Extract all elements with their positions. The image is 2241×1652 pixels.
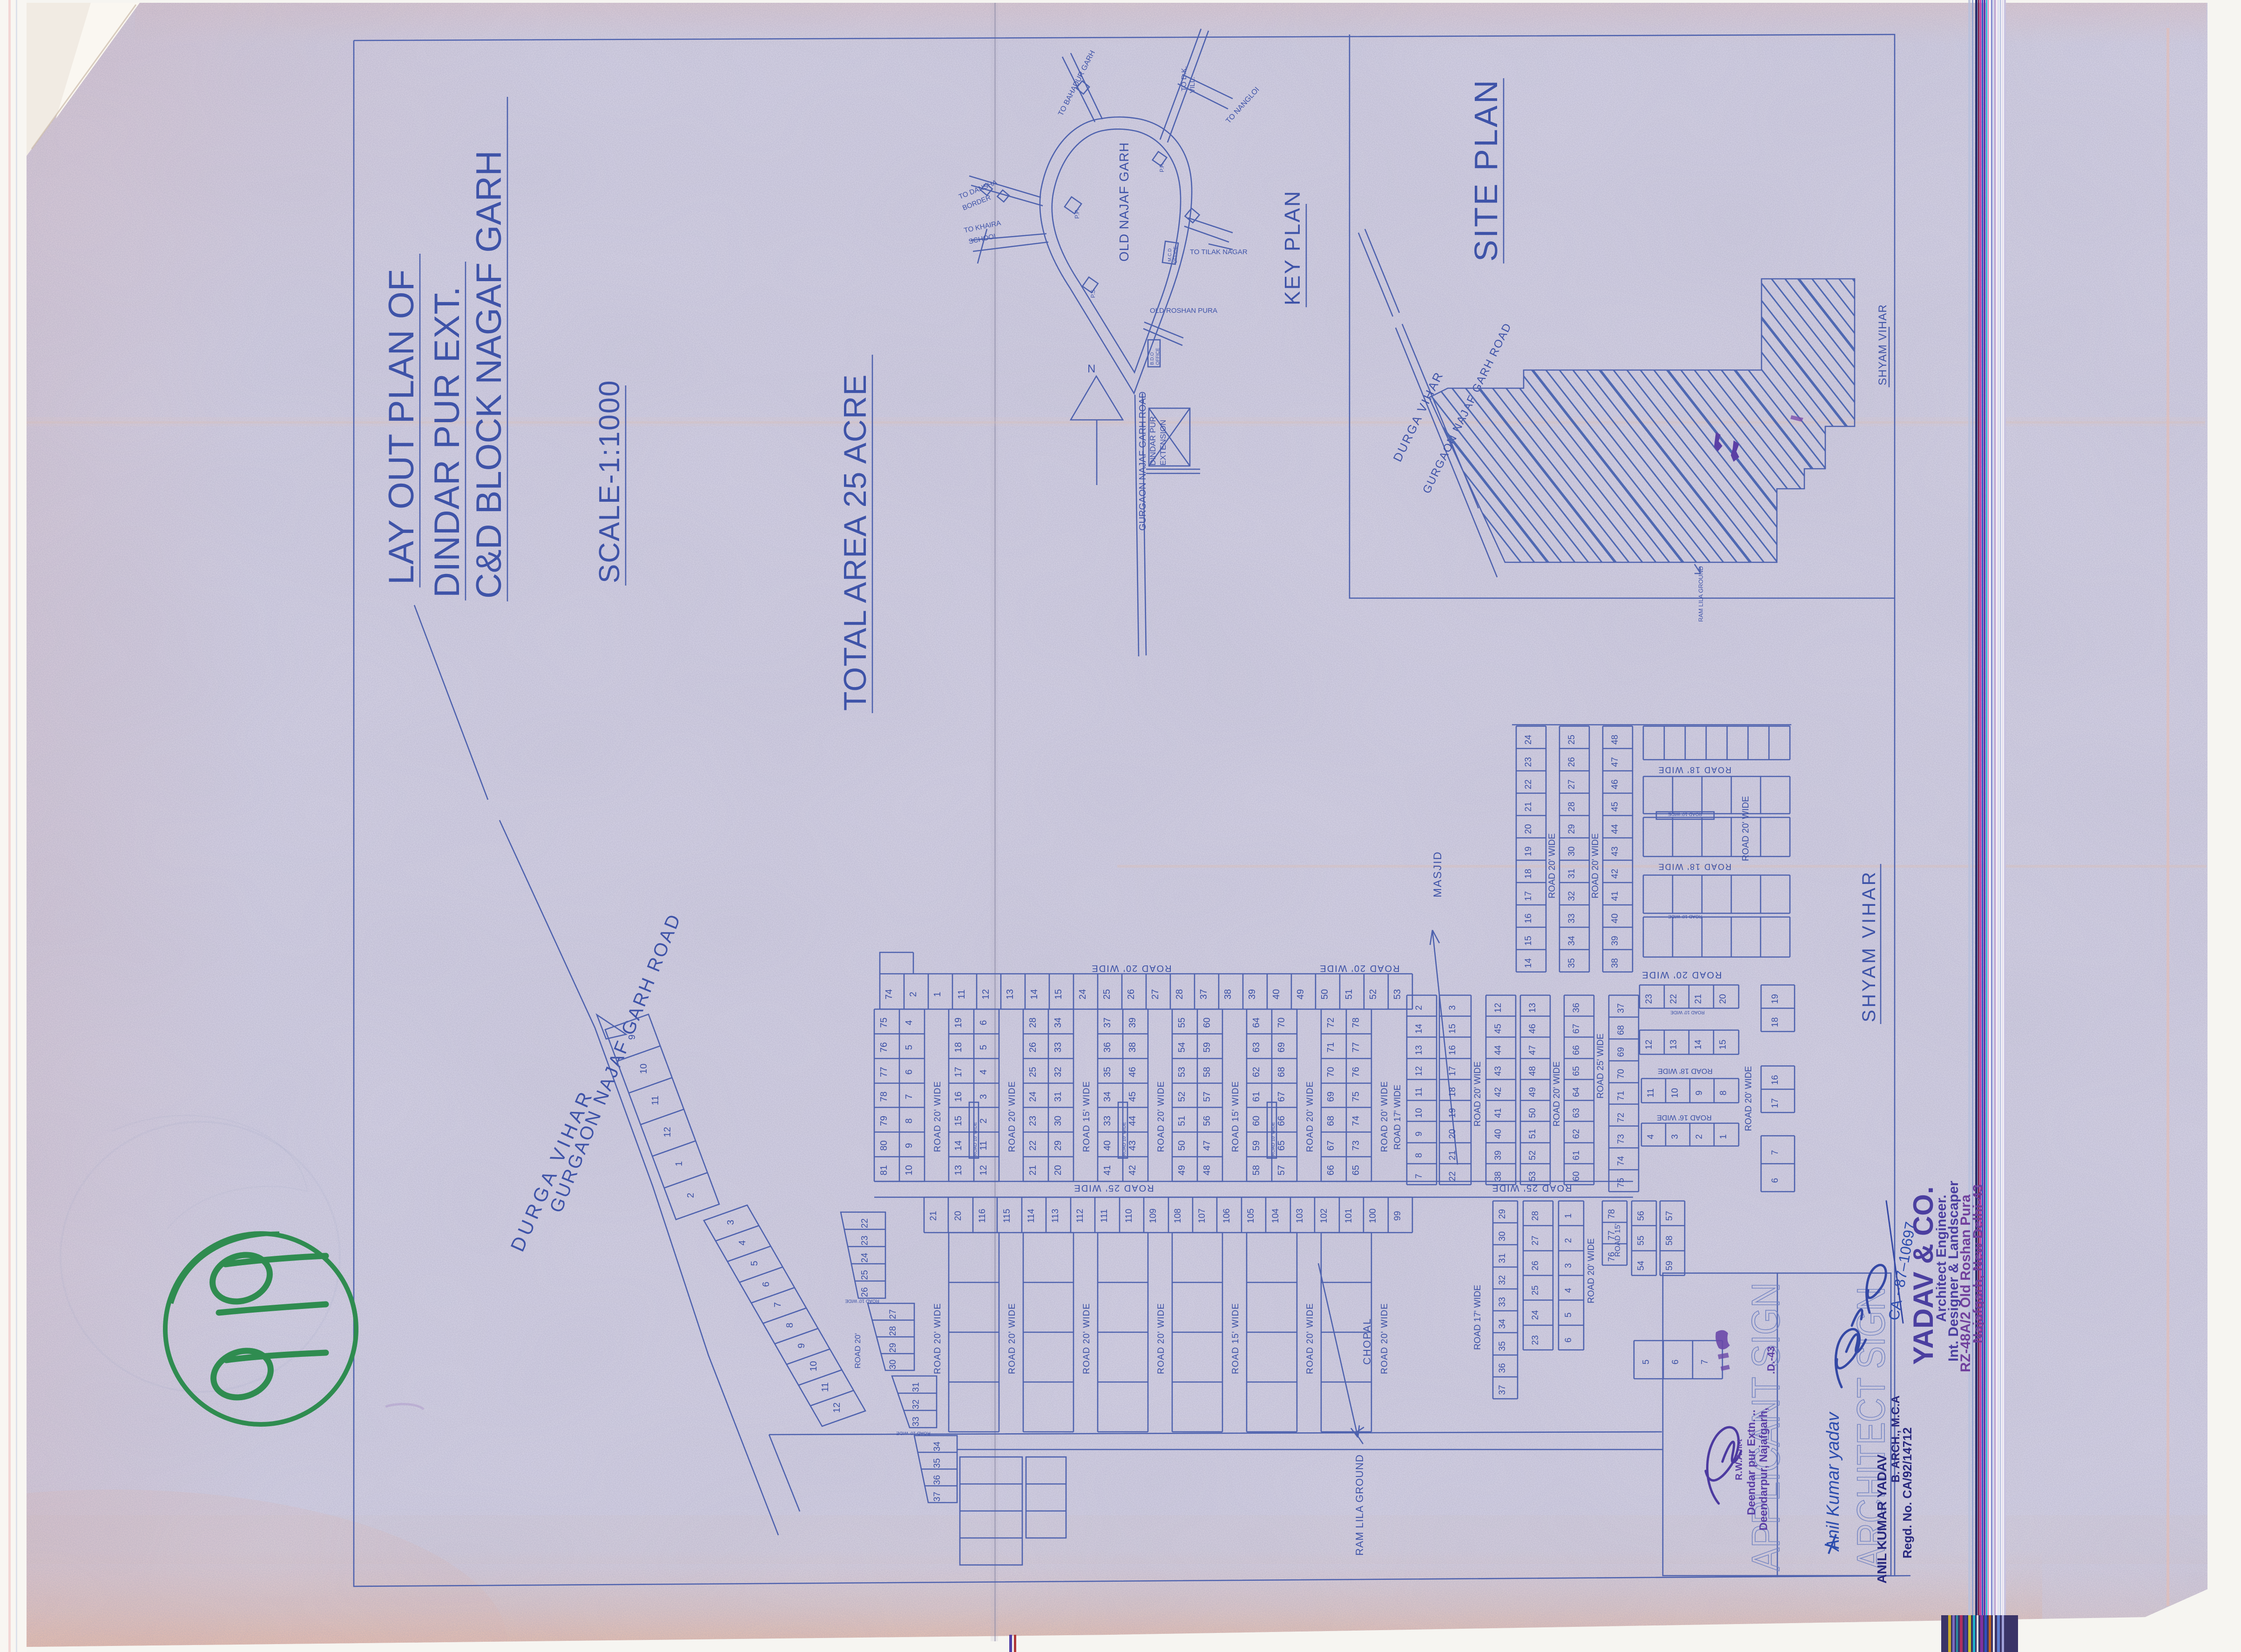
svg-text:44: 44 <box>1610 824 1620 834</box>
svg-text:63: 63 <box>1251 1042 1262 1052</box>
svg-text:8: 8 <box>1719 1091 1728 1096</box>
svg-text:36: 36 <box>932 1475 942 1485</box>
svg-text:15: 15 <box>953 1116 964 1126</box>
svg-text:50: 50 <box>1177 1140 1187 1151</box>
svg-text:39: 39 <box>1610 936 1620 945</box>
svg-text:24: 24 <box>1078 989 1088 999</box>
svg-text:42: 42 <box>1493 1087 1503 1097</box>
svg-text:63: 63 <box>1572 1108 1581 1118</box>
svg-text:18: 18 <box>953 1042 964 1052</box>
svg-text:71: 71 <box>1326 1042 1336 1052</box>
svg-text:20: 20 <box>1448 1129 1458 1139</box>
svg-text:11: 11 <box>820 1382 830 1392</box>
svg-text:24: 24 <box>1524 735 1533 745</box>
svg-text:OLD NAJAF GARH: OLD NAJAF GARH <box>1117 142 1131 262</box>
svg-text:ROAD 18' WIDE: ROAD 18' WIDE <box>1658 1067 1713 1075</box>
svg-text:15: 15 <box>1053 989 1064 999</box>
svg-text:106: 106 <box>1222 1208 1232 1223</box>
svg-text:109: 109 <box>1148 1208 1158 1223</box>
svg-text:17: 17 <box>953 1067 964 1077</box>
svg-text:66: 66 <box>1572 1045 1581 1055</box>
svg-text:4: 4 <box>737 1240 748 1245</box>
svg-text:21: 21 <box>1028 1165 1038 1175</box>
svg-text:29: 29 <box>1053 1140 1063 1151</box>
svg-text:14: 14 <box>1694 1039 1703 1050</box>
svg-text:1: 1 <box>1564 1214 1573 1219</box>
svg-text:28: 28 <box>1028 1018 1038 1028</box>
svg-text:ROAD 20' WIDE: ROAD 20' WIDE <box>1091 963 1171 973</box>
svg-text:23: 23 <box>1644 994 1654 1004</box>
svg-text:19: 19 <box>1524 846 1533 856</box>
svg-text:58: 58 <box>1202 1067 1212 1077</box>
svg-text:73: 73 <box>1616 1134 1626 1144</box>
svg-text:ROAD 10' WIDE: ROAD 10' WIDE <box>1668 811 1702 816</box>
svg-text:ROAD 20' WIDE: ROAD 20' WIDE <box>1591 833 1600 898</box>
svg-text:42: 42 <box>1610 869 1620 878</box>
svg-text:16: 16 <box>953 1092 964 1102</box>
svg-text:52: 52 <box>1528 1150 1538 1160</box>
svg-text:17: 17 <box>1524 891 1533 901</box>
svg-text:104: 104 <box>1271 1208 1281 1223</box>
svg-text:34: 34 <box>1053 1018 1063 1028</box>
svg-text:18: 18 <box>1448 1087 1458 1097</box>
svg-text:52: 52 <box>1177 1092 1187 1102</box>
svg-text:38: 38 <box>1493 1171 1503 1181</box>
svg-text:ROAD 25' WIDE: ROAD 25' WIDE <box>1596 1033 1606 1099</box>
svg-text:14: 14 <box>1524 958 1533 968</box>
svg-text:31: 31 <box>1053 1092 1063 1102</box>
svg-text:111: 111 <box>1100 1209 1109 1223</box>
svg-text:45: 45 <box>1610 802 1620 811</box>
svg-text:114: 114 <box>1026 1208 1036 1223</box>
svg-text:53: 53 <box>1177 1067 1187 1077</box>
svg-text:35: 35 <box>1498 1341 1507 1351</box>
svg-text:Deendarpur, Najafgarh,: Deendarpur, Najafgarh, <box>1757 1408 1770 1531</box>
svg-text:M.C.D: M.C.D <box>1168 249 1173 262</box>
svg-text:37: 37 <box>1616 1003 1626 1013</box>
svg-text:75: 75 <box>1351 1092 1361 1102</box>
svg-text:ROAD 20' WIDE: ROAD 20' WIDE <box>1156 1303 1166 1374</box>
svg-text:ROAD 15' WIDE: ROAD 15' WIDE <box>1231 1081 1241 1152</box>
svg-text:77: 77 <box>1351 1042 1361 1052</box>
svg-text:29: 29 <box>888 1343 898 1353</box>
svg-text:28: 28 <box>888 1326 898 1336</box>
svg-text:11: 11 <box>650 1096 661 1106</box>
svg-text:68: 68 <box>1616 1025 1626 1035</box>
svg-text:74: 74 <box>1351 1116 1361 1126</box>
svg-text:72: 72 <box>1616 1113 1626 1122</box>
svg-text:12: 12 <box>1644 1039 1654 1049</box>
svg-text:29: 29 <box>1567 824 1577 834</box>
svg-text:ROAD 16' WIDE: ROAD 16' WIDE <box>1657 1113 1712 1121</box>
svg-text:23: 23 <box>860 1235 870 1245</box>
svg-text:26: 26 <box>1567 757 1577 767</box>
svg-text:64: 64 <box>1572 1087 1581 1097</box>
svg-text:13: 13 <box>1528 1003 1538 1012</box>
svg-text:78: 78 <box>1351 1018 1361 1028</box>
svg-text:9: 9 <box>627 1034 637 1039</box>
svg-text:45: 45 <box>1493 1024 1503 1033</box>
svg-text:31: 31 <box>1567 869 1577 878</box>
svg-text:28: 28 <box>1531 1211 1540 1220</box>
svg-text:ROAD 15' WIDE: ROAD 15' WIDE <box>1082 1081 1092 1152</box>
svg-text:19: 19 <box>1448 1108 1458 1118</box>
svg-text:64: 64 <box>1251 1018 1262 1028</box>
svg-text:10: 10 <box>639 1064 649 1074</box>
svg-text:115: 115 <box>1002 1209 1012 1223</box>
svg-text:ROAD 20' WIDE: ROAD 20' WIDE <box>933 1303 943 1374</box>
svg-text:113: 113 <box>1051 1209 1060 1223</box>
svg-text:65: 65 <box>1572 1066 1581 1076</box>
svg-text:ROAD 10' WIDE: ROAD 10' WIDE <box>1668 914 1702 919</box>
svg-text:74: 74 <box>1616 1156 1626 1166</box>
svg-text:21: 21 <box>929 1211 938 1220</box>
svg-text:66: 66 <box>1326 1165 1336 1175</box>
svg-text:58: 58 <box>1665 1235 1674 1245</box>
svg-text:OFFICE: OFFICE <box>1173 246 1178 263</box>
svg-text:24: 24 <box>1028 1092 1038 1102</box>
svg-text:40: 40 <box>1271 989 1282 999</box>
svg-text:ROAD 20' WIDE: ROAD 20' WIDE <box>1741 796 1751 861</box>
svg-text:57: 57 <box>1202 1092 1212 1102</box>
svg-text:ROAD 20' WIDE: ROAD 20' WIDE <box>1641 970 1721 980</box>
svg-text:6: 6 <box>1564 1338 1573 1343</box>
svg-text:28: 28 <box>1567 802 1577 811</box>
svg-text:39: 39 <box>1127 1018 1138 1028</box>
svg-text:3: 3 <box>1448 1005 1458 1011</box>
svg-text:21: 21 <box>1694 994 1703 1004</box>
svg-text:45: 45 <box>1127 1092 1138 1102</box>
svg-text:25: 25 <box>1102 989 1112 999</box>
svg-text:13: 13 <box>953 1165 964 1175</box>
svg-text:ROAD 18' WIDE: ROAD 18' WIDE <box>1658 765 1731 775</box>
svg-text:4: 4 <box>1564 1288 1573 1293</box>
svg-text:36: 36 <box>1572 1003 1581 1012</box>
svg-text:Deendar pur Extn. ..: Deendar pur Extn. .. <box>1745 1409 1758 1515</box>
svg-text:75: 75 <box>879 1018 889 1028</box>
svg-text:5: 5 <box>749 1261 760 1266</box>
svg-text:48: 48 <box>1528 1066 1538 1076</box>
svg-text:20: 20 <box>953 1211 963 1220</box>
svg-text:70: 70 <box>1276 1018 1287 1028</box>
svg-text:12: 12 <box>832 1403 842 1413</box>
svg-text:29: 29 <box>1498 1209 1507 1219</box>
svg-text:81: 81 <box>879 1165 889 1175</box>
svg-text:40: 40 <box>1102 1140 1113 1151</box>
svg-text:30: 30 <box>1498 1231 1507 1241</box>
svg-text:46: 46 <box>1127 1067 1138 1077</box>
svg-text:69: 69 <box>1276 1042 1287 1052</box>
svg-text:53: 53 <box>1528 1171 1538 1181</box>
svg-text:3: 3 <box>979 1094 989 1099</box>
svg-text:65: 65 <box>1351 1165 1361 1175</box>
svg-text:43: 43 <box>1610 846 1620 856</box>
svg-text:17: 17 <box>1448 1066 1458 1076</box>
svg-text:22: 22 <box>1448 1171 1458 1181</box>
svg-text:68: 68 <box>1326 1116 1336 1126</box>
svg-text:107: 107 <box>1197 1208 1207 1223</box>
svg-text:67: 67 <box>1276 1092 1287 1102</box>
svg-text:8: 8 <box>904 1118 914 1123</box>
svg-text:48: 48 <box>1610 735 1620 744</box>
svg-text:ROAD 20': ROAD 20' <box>853 1333 862 1369</box>
svg-text:26: 26 <box>860 1287 870 1297</box>
svg-text:2: 2 <box>686 1193 696 1198</box>
svg-text:Najafgarh, New Delhi-43: Najafgarh, New Delhi-43 <box>1971 1184 1986 1343</box>
svg-text:11: 11 <box>979 1141 989 1151</box>
svg-text:23: 23 <box>1028 1116 1038 1126</box>
svg-text:54: 54 <box>1636 1261 1646 1271</box>
svg-text:ROAD 20' WIDE: ROAD 20' WIDE <box>1082 1303 1092 1374</box>
svg-text:KEY PLAN: KEY PLAN <box>1280 190 1304 305</box>
svg-text:46: 46 <box>1610 779 1620 789</box>
svg-text:67: 67 <box>1572 1024 1581 1033</box>
svg-text:14: 14 <box>953 1140 964 1151</box>
svg-text:P.P.: P.P. <box>1159 163 1165 172</box>
svg-text:31: 31 <box>1498 1253 1507 1263</box>
svg-text:57: 57 <box>1665 1211 1674 1220</box>
svg-text:2: 2 <box>979 1118 989 1123</box>
svg-text:22: 22 <box>1524 779 1533 789</box>
svg-text:33: 33 <box>1102 1116 1113 1126</box>
svg-text:25: 25 <box>1567 735 1577 744</box>
svg-text:ROAD 20' WIDE: ROAD 20' WIDE <box>1380 1081 1390 1152</box>
svg-text:50: 50 <box>1528 1108 1538 1118</box>
svg-text:56: 56 <box>1202 1116 1212 1126</box>
svg-text:ROAD 10' WIDE: ROAD 10' WIDE <box>1271 1122 1276 1156</box>
svg-text:49: 49 <box>1177 1165 1187 1175</box>
svg-text:OFFICE: OFFICE <box>1155 348 1161 365</box>
svg-text:27: 27 <box>1150 989 1161 999</box>
svg-text:14: 14 <box>1414 1024 1424 1034</box>
svg-text:30: 30 <box>1053 1116 1063 1126</box>
svg-text:34: 34 <box>932 1441 942 1451</box>
svg-text:72: 72 <box>1326 1018 1336 1028</box>
svg-text:SHYAM VIHAR: SHYAM VIHAR <box>1859 870 1879 1022</box>
svg-text:65: 65 <box>1276 1140 1287 1151</box>
svg-text:12: 12 <box>981 989 991 999</box>
svg-text:TO TILAK NAGAR: TO TILAK NAGAR <box>1190 248 1248 256</box>
svg-text:13: 13 <box>1669 1039 1679 1049</box>
svg-text:12: 12 <box>662 1127 673 1137</box>
svg-text:46: 46 <box>1528 1024 1538 1033</box>
svg-text:8: 8 <box>785 1322 795 1328</box>
svg-text:25: 25 <box>860 1270 870 1280</box>
svg-text:108: 108 <box>1173 1208 1183 1223</box>
svg-text:33: 33 <box>1498 1297 1507 1307</box>
svg-text:32: 32 <box>1567 891 1577 901</box>
svg-text:112: 112 <box>1075 1209 1085 1223</box>
svg-text:ROAD 20' WIDE: ROAD 20' WIDE <box>1319 963 1399 973</box>
svg-text:20: 20 <box>1524 824 1533 834</box>
svg-text:43: 43 <box>1127 1140 1138 1151</box>
svg-text:33: 33 <box>1567 913 1577 923</box>
svg-text:49: 49 <box>1528 1087 1538 1097</box>
svg-text:60: 60 <box>1251 1116 1262 1126</box>
svg-text:35: 35 <box>1567 958 1577 968</box>
svg-text:GURGAON NAJAF GARH ROAD: GURGAON NAJAF GARH ROAD <box>1138 391 1148 531</box>
svg-text:ROAD 20' WIDE: ROAD 20' WIDE <box>1547 833 1557 898</box>
svg-text:61: 61 <box>1572 1150 1581 1160</box>
svg-text:5: 5 <box>1641 1360 1651 1365</box>
svg-text:ANIL KUMAR YADAV: ANIL KUMAR YADAV <box>1875 1454 1889 1584</box>
svg-text:30: 30 <box>1567 846 1577 856</box>
svg-text:69: 69 <box>1616 1047 1626 1057</box>
svg-text:38: 38 <box>1127 1042 1138 1052</box>
svg-text:ROAD 20' WIDE: ROAD 20' WIDE <box>1305 1081 1315 1152</box>
svg-text:9: 9 <box>1694 1091 1704 1096</box>
svg-text:26: 26 <box>1028 1042 1038 1052</box>
svg-text:17: 17 <box>1770 1098 1780 1108</box>
svg-text:103: 103 <box>1295 1208 1305 1223</box>
svg-text:15: 15 <box>1448 1024 1458 1033</box>
svg-text:9: 9 <box>796 1343 807 1348</box>
svg-text:ROAD 20' WIDE: ROAD 20' WIDE <box>1586 1238 1596 1303</box>
svg-text:C&D BLOCK NAGAF GARH: C&D BLOCK NAGAF GARH <box>469 150 509 599</box>
svg-text:13: 13 <box>1005 989 1015 999</box>
svg-text:19: 19 <box>953 1018 964 1028</box>
svg-text:ROAD 20' WIDE: ROAD 20' WIDE <box>1552 1061 1562 1126</box>
svg-text:76: 76 <box>879 1042 889 1052</box>
svg-text:5: 5 <box>979 1045 989 1050</box>
svg-text:59: 59 <box>1665 1261 1674 1270</box>
svg-text:37: 37 <box>1199 989 1209 999</box>
svg-text:B.D.O: B.D.O <box>1150 352 1155 365</box>
svg-text:62: 62 <box>1572 1129 1581 1139</box>
svg-text:22: 22 <box>860 1218 870 1228</box>
svg-text:4: 4 <box>904 1020 914 1025</box>
svg-text:2: 2 <box>908 991 918 997</box>
svg-text:16: 16 <box>1524 913 1533 923</box>
svg-text:ROAD 17' WIDE: ROAD 17' WIDE <box>1473 1285 1483 1350</box>
svg-text:N: N <box>1087 363 1095 375</box>
svg-text:78: 78 <box>879 1092 889 1102</box>
svg-text:ROAD 18' WIDE: ROAD 18' WIDE <box>1658 862 1731 871</box>
svg-text:19: 19 <box>1770 994 1780 1004</box>
svg-text:Anil Kumar yadav: Anil Kumar yadav <box>1823 1411 1843 1552</box>
svg-text:37: 37 <box>932 1492 942 1502</box>
svg-text:ROAD 10' WIDE: ROAD 10' WIDE <box>1122 1122 1127 1156</box>
svg-text:100: 100 <box>1368 1208 1378 1223</box>
svg-text:27: 27 <box>888 1309 898 1319</box>
svg-text:76: 76 <box>1607 1252 1617 1261</box>
svg-text:7: 7 <box>1414 1174 1424 1179</box>
svg-text:110: 110 <box>1124 1209 1134 1223</box>
svg-text:77: 77 <box>879 1067 889 1077</box>
svg-text:ROAD 20' WIDE: ROAD 20' WIDE <box>1305 1303 1315 1374</box>
svg-text:26: 26 <box>1126 989 1136 999</box>
svg-text:33: 33 <box>911 1416 921 1426</box>
svg-text:ROAD 10' WIDE: ROAD 10' WIDE <box>1670 1010 1705 1015</box>
svg-text:50: 50 <box>1320 989 1330 999</box>
svg-text:39: 39 <box>1493 1150 1503 1160</box>
svg-text:116: 116 <box>978 1209 987 1223</box>
svg-text:30: 30 <box>888 1360 898 1369</box>
svg-text:76: 76 <box>1351 1067 1361 1077</box>
svg-text:33: 33 <box>1053 1042 1063 1052</box>
svg-text:20: 20 <box>1053 1165 1063 1175</box>
svg-text:13: 13 <box>1414 1045 1424 1055</box>
svg-text:2: 2 <box>1564 1238 1573 1243</box>
svg-text:ROAD 20' WIDE: ROAD 20' WIDE <box>1156 1081 1166 1152</box>
svg-text:62: 62 <box>1251 1067 1262 1077</box>
svg-text:71: 71 <box>1616 1091 1626 1100</box>
svg-text:3: 3 <box>1670 1134 1680 1140</box>
svg-text:SHYAM VIHAR: SHYAM VIHAR <box>1876 304 1889 385</box>
svg-text:56: 56 <box>1636 1211 1646 1220</box>
svg-text:2: 2 <box>1694 1134 1704 1140</box>
svg-text:57: 57 <box>1276 1165 1287 1175</box>
svg-text:7: 7 <box>773 1302 783 1307</box>
svg-text:SITE PLAN: SITE PLAN <box>1468 78 1504 262</box>
svg-text:59: 59 <box>1202 1042 1212 1052</box>
svg-text:1: 1 <box>932 991 943 997</box>
svg-text:34: 34 <box>1102 1092 1113 1102</box>
svg-text:25: 25 <box>1531 1285 1540 1295</box>
svg-text:P.P.: P.P. <box>1073 209 1080 219</box>
svg-text:10: 10 <box>1670 1088 1680 1098</box>
svg-text:47: 47 <box>1202 1140 1212 1151</box>
svg-text:28: 28 <box>1174 989 1185 999</box>
svg-text:51: 51 <box>1344 989 1354 999</box>
svg-text:61: 61 <box>1251 1092 1262 1102</box>
svg-text:DINDAR PUR: DINDAR PUR <box>1148 416 1157 465</box>
svg-text:53: 53 <box>1392 989 1403 999</box>
svg-text:4: 4 <box>1646 1134 1656 1139</box>
svg-text:MASJID: MASJID <box>1431 851 1444 897</box>
svg-text:35: 35 <box>1102 1067 1113 1077</box>
svg-text:Regd. No. CA/92/14712: Regd. No. CA/92/14712 <box>1900 1427 1914 1558</box>
svg-text:38: 38 <box>1223 989 1233 999</box>
svg-text:ROAD 20' WIDE: ROAD 20' WIDE <box>1007 1081 1017 1152</box>
svg-text:78: 78 <box>1607 1209 1617 1219</box>
svg-text:52: 52 <box>1368 989 1378 999</box>
svg-text:20: 20 <box>1718 994 1728 1004</box>
svg-text:32: 32 <box>1053 1067 1063 1077</box>
svg-text:CHOPAL: CHOPAL <box>1361 1318 1373 1365</box>
svg-text:ROAD 10' WIDE: ROAD 10' WIDE <box>845 1298 879 1303</box>
svg-text:22: 22 <box>1669 994 1679 1004</box>
svg-text:23: 23 <box>1524 757 1533 767</box>
svg-text:51: 51 <box>1528 1129 1538 1139</box>
svg-text:21: 21 <box>1524 802 1533 811</box>
svg-text:15: 15 <box>1524 936 1533 945</box>
svg-text:35: 35 <box>932 1458 942 1468</box>
svg-text:3: 3 <box>726 1220 736 1225</box>
svg-text:40: 40 <box>1493 1129 1503 1139</box>
svg-text:RAM LILA GROUND: RAM LILA GROUND <box>1354 1454 1365 1556</box>
svg-text:80: 80 <box>879 1140 889 1151</box>
svg-text:27: 27 <box>1531 1235 1540 1245</box>
svg-text:60: 60 <box>1572 1171 1581 1181</box>
svg-text:75: 75 <box>1616 1178 1626 1187</box>
svg-text:14: 14 <box>1029 989 1039 999</box>
svg-text:26: 26 <box>1531 1261 1540 1270</box>
svg-text:9: 9 <box>904 1143 914 1148</box>
svg-text:48: 48 <box>1202 1165 1212 1175</box>
svg-text:6: 6 <box>1671 1360 1681 1365</box>
svg-text:69: 69 <box>1326 1092 1336 1102</box>
svg-text:EXTENSION: EXTENSION <box>1159 420 1168 465</box>
svg-text:68: 68 <box>1276 1067 1287 1077</box>
svg-text:99: 99 <box>1393 1211 1403 1220</box>
svg-text:9: 9 <box>1414 1132 1424 1137</box>
svg-text:32: 32 <box>911 1399 921 1409</box>
svg-text:2: 2 <box>1414 1005 1424 1011</box>
svg-text:41: 41 <box>1493 1108 1503 1118</box>
svg-text:79: 79 <box>879 1116 889 1126</box>
svg-text:ROAD 25' WIDE: ROAD 25' WIDE <box>1073 1183 1154 1193</box>
